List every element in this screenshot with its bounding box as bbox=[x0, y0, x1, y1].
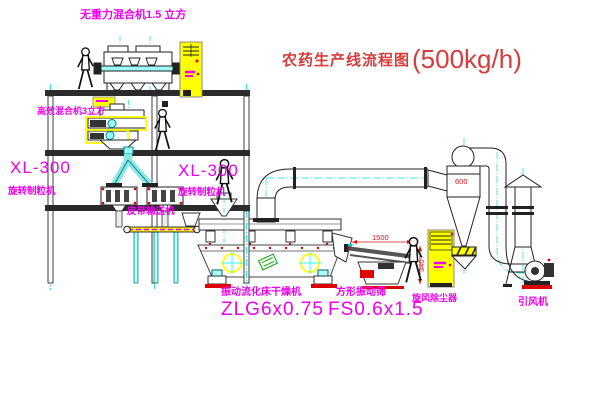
label-screen-model: FS0.6x1.5 bbox=[328, 300, 424, 319]
label-granulator-left-model: XL-300 bbox=[10, 159, 71, 176]
control-cabinet-right bbox=[428, 230, 454, 287]
cyclone-size-text: 600 bbox=[455, 177, 468, 186]
floor-band-1 bbox=[45, 90, 250, 96]
flow-diagram: 1500 340 bbox=[0, 0, 600, 403]
label-mid-mixer: 高效混合机3立方 bbox=[37, 107, 105, 116]
label-cyclone: 旋风除尘器 bbox=[412, 294, 457, 303]
label-dryer-name: 振动流化床干燥机 bbox=[221, 288, 301, 298]
label-granulator-right-name: 旋转制粒机 bbox=[178, 188, 226, 198]
svg-text:1500: 1500 bbox=[372, 233, 389, 242]
label-belt-conveyor: 皮带输送机 bbox=[127, 207, 175, 217]
label-fan: 引风机 bbox=[518, 298, 548, 308]
dimension-length: 1500 bbox=[352, 233, 412, 244]
label-screen-name: 方形振动筛 bbox=[336, 288, 386, 298]
exhaust-duct bbox=[253, 167, 456, 222]
floor-band-2 bbox=[45, 150, 250, 156]
person-figure bbox=[78, 48, 93, 89]
diagram-title: 农药生产线流程图 (500kg/h) bbox=[282, 44, 522, 75]
title-capacity: (500kg/h) bbox=[412, 44, 522, 75]
top-mixer bbox=[93, 36, 180, 107]
title-chinese: 农药生产线流程图 bbox=[282, 49, 410, 70]
column-right-overlay bbox=[244, 211, 249, 283]
control-cabinet-top bbox=[180, 42, 202, 97]
label-granulator-right-model: XL-300 bbox=[178, 162, 239, 179]
label-granulator-left-name: 旋转制粒机 bbox=[8, 187, 56, 197]
label-dryer-model: ZLG6x0.75 bbox=[221, 300, 324, 319]
induced-draft-fan bbox=[522, 259, 554, 289]
label-top-mixer: 无重力混合机1.5 立方 bbox=[80, 10, 186, 21]
y-pipe bbox=[106, 154, 158, 187]
